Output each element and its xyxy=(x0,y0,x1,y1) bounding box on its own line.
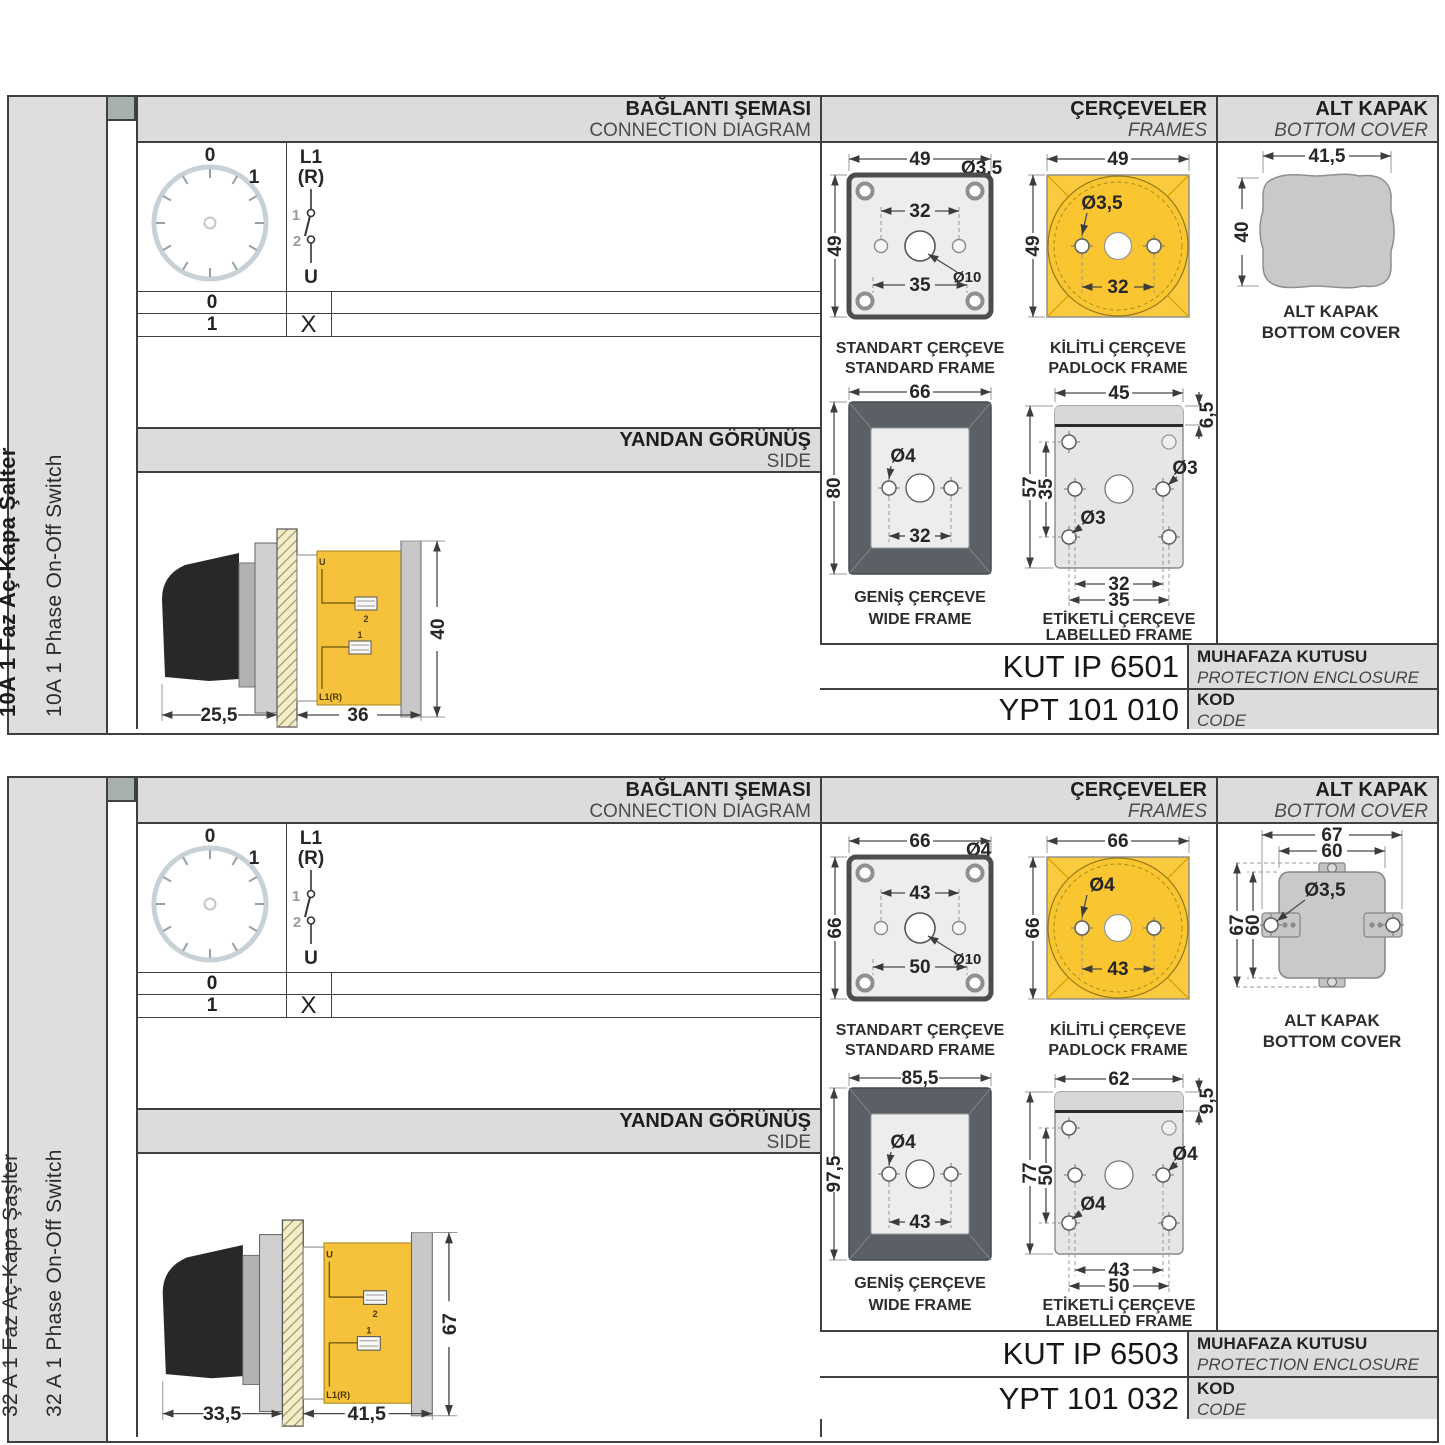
header-title-en: SIDE xyxy=(767,451,811,472)
frame-caption-en: LABELLED FRAME xyxy=(1046,627,1193,644)
terminal-l1r: L1(R) xyxy=(319,692,342,702)
labelled-frame-drawing: 45 6,5 57 35 Ø3 Ø3 32 35 ETİKETLİ ÇERÇEV… xyxy=(1019,384,1216,642)
bottom-cover-drawing: 41,5 40 ALT KAPAK BOTTOM COVER xyxy=(1217,145,1437,345)
order-code-label-tr: KOD xyxy=(1197,689,1437,710)
product-panel-32a: 32 A 1 Faz Aç-Kapa Şaşlter 32 A 1 Phase … xyxy=(7,776,1439,1443)
order-code-label-tr: KOD xyxy=(1197,1378,1437,1399)
dim-hole-centers: 43 xyxy=(909,1212,930,1233)
corner-block xyxy=(108,97,136,121)
order-code: YPT 101 010 xyxy=(820,688,1187,729)
standard-frame-drawing: 66 Ø4 43 Ø10 50 66 STANDART ÇERÇEVE STAN… xyxy=(821,826,1019,1066)
divider xyxy=(331,972,332,1017)
cover-caption-en: BOTTOM COVER xyxy=(1263,1032,1402,1051)
product-title-en: 10A 1 Phase On-Off Switch xyxy=(43,454,67,717)
dial-position-1: 1 xyxy=(249,848,260,869)
product-title-tr: 32 A 1 Faz Aç-Kapa Şaşlter xyxy=(0,1154,23,1417)
frames-header: ÇERÇEVELER FRAMES xyxy=(820,778,1216,824)
order-code-label-en: CODE xyxy=(1197,1399,1437,1420)
bottom-cover-header: ALT KAPAK BOTTOM COVER xyxy=(1216,97,1437,143)
standard-frame-drawing: 49 Ø3,5 32 Ø10 35 49 STANDART ÇERÇEVE ST… xyxy=(821,145,1019,383)
contact-1-label: 1 xyxy=(292,207,300,224)
header-title-en: FRAMES xyxy=(1128,801,1207,822)
terminal-u-label: U xyxy=(304,948,318,969)
dim-width: 49 xyxy=(909,149,930,170)
header-title-en: FRAMES xyxy=(1128,120,1207,141)
dim-lower-centers: 35 xyxy=(909,275,931,296)
enclosure-label-tr: MUHAFAZA KUTUSU xyxy=(1197,646,1437,667)
terminal-u: U xyxy=(319,557,326,567)
dim-height: 40 xyxy=(1232,221,1253,242)
dim-height: 67 xyxy=(439,1313,461,1335)
dim-height: 66 xyxy=(825,917,846,938)
dim-hole-mid: Ø4 xyxy=(1172,1144,1198,1165)
terminal-l1-label: L1 xyxy=(300,828,323,849)
terminal-u: U xyxy=(326,1250,333,1260)
header-title-tr: BAĞLANTI ŞEMASI xyxy=(625,779,811,801)
product-panel-10a: 10A 1 Faz Aç-Kapa Şalter 10A 1 Phase On-… xyxy=(7,95,1439,735)
side-title-strip: 32 A 1 Faz Aç-Kapa Şaşlter 32 A 1 Phase … xyxy=(9,778,108,1441)
dim-hole-mid: Ø3 xyxy=(1172,458,1197,479)
terminal-u-label: U xyxy=(304,267,318,288)
bottom-cover-drawing: 67 60 67 60 Ø3,5 ALT KAPAK BOTTOM COVER xyxy=(1217,826,1437,1061)
dim-lower-centers: 35 xyxy=(1108,590,1130,611)
frame-caption-tr: ETİKETLİ ÇERÇEVE xyxy=(1043,1296,1196,1314)
side-view-drawing: U 2 1 L1(R) 40 25,5 36 xyxy=(149,479,629,724)
dim-strip: 9,5 xyxy=(1197,1087,1218,1114)
dim-width: 49 xyxy=(1107,149,1128,170)
terminal-l1r: L1(R) xyxy=(326,1390,350,1400)
padlock-frame-drawing: 49 Ø3,5 32 49 KİLİTLİ ÇERÇEVE PADLOCK FR… xyxy=(1019,145,1216,383)
dim-strip: 6,5 xyxy=(1197,401,1218,428)
enclosure-label-en: PROTECTION ENCLOSURE xyxy=(1197,667,1437,688)
header-title-tr: ALT KAPAK xyxy=(1315,98,1428,120)
dim-handle-depth: 25,5 xyxy=(201,705,238,726)
frame-caption-tr: STANDART ÇERÇEVE xyxy=(836,340,1005,357)
dim-handle-depth: 33,5 xyxy=(203,1403,241,1425)
switch-symbol: L1 (R) 1 2 U xyxy=(287,143,407,291)
frame-caption-en: LABELLED FRAME xyxy=(1046,1313,1193,1330)
dim-hole: Ø4 xyxy=(1089,875,1115,896)
dim-height: 97,5 xyxy=(824,1155,845,1192)
frame-caption-en: WIDE FRAME xyxy=(868,1297,971,1314)
dim-hole-low: Ø3 xyxy=(1080,508,1105,529)
header-title-en: SIDE xyxy=(767,1132,811,1153)
connection-diagram-header: BAĞLANTI ŞEMASI CONNECTION DIAGRAM xyxy=(138,97,820,143)
enclosure-label: MUHAFAZA KUTUSU PROTECTION ENCLOSURE xyxy=(1187,1330,1437,1376)
dim-width: 66 xyxy=(909,382,930,403)
dim-body-depth: 36 xyxy=(347,705,368,726)
side-title-strip: 10A 1 Faz Aç-Kapa Şalter 10A 1 Phase On-… xyxy=(9,97,108,733)
table-line xyxy=(138,1017,820,1018)
dim-hole: Ø4 xyxy=(890,446,916,467)
order-code-label-en: CODE xyxy=(1197,710,1437,731)
connection-diagram-header: BAĞLANTI ŞEMASI CONNECTION DIAGRAM xyxy=(138,778,820,824)
dim-height: 49 xyxy=(1023,235,1044,256)
order-code-label: KOD CODE xyxy=(1187,688,1437,729)
dim-width: 41,5 xyxy=(1309,146,1346,167)
wide-frame-drawing: 66 Ø4 32 80 GENİŞ ÇERÇEVE WIDE FRAME xyxy=(821,384,1019,642)
dim-width: 62 xyxy=(1108,1069,1129,1090)
product-title-en: 32 A 1 Phase On-Off Switch xyxy=(43,1149,67,1417)
header-title-tr: BAĞLANTI ŞEMASI xyxy=(625,98,811,120)
dim-width: 45 xyxy=(1108,383,1130,404)
cover-caption-tr: ALT KAPAK xyxy=(1284,1011,1380,1030)
dim-height: 80 xyxy=(824,477,845,498)
wide-frame-drawing: 85,5 Ø4 43 97,5 GENİŞ ÇERÇEVE WIDE FRAME xyxy=(821,1070,1019,1328)
frame-caption-tr: ETİKETLİ ÇERÇEVE xyxy=(1043,610,1196,628)
rotary-dial-diagram: 0 1 xyxy=(138,143,286,291)
product-title-tr: 10A 1 Faz Aç-Kapa Şalter xyxy=(0,447,21,717)
dim-height: 66 xyxy=(1023,917,1044,938)
terminal-1: 1 xyxy=(366,1325,371,1335)
header-title-en: CONNECTION DIAGRAM xyxy=(589,120,811,141)
dim-inner-height: 35 xyxy=(1036,478,1057,500)
dim-hole-centers: 43 xyxy=(1107,959,1128,980)
dim-height: 40 xyxy=(428,618,449,639)
dim-hole: Ø3,5 xyxy=(1081,193,1123,214)
contact-2-label: 2 xyxy=(293,233,301,250)
dim-width: 66 xyxy=(1107,831,1128,852)
table-row-position: 1 xyxy=(138,314,286,336)
divider xyxy=(331,291,332,336)
enclosure-label-en: PROTECTION ENCLOSURE xyxy=(1197,1354,1437,1375)
labelled-frame-drawing: 62 9,5 77 50 Ø4 Ø4 43 50 ETİKETLİ ÇERÇEV… xyxy=(1019,1070,1216,1328)
table-line xyxy=(138,336,820,337)
side-view-header: YANDAN GÖRÜNÜŞ SIDE xyxy=(138,427,820,473)
dim-width: 85,5 xyxy=(902,1068,939,1089)
order-code-label: KOD CODE xyxy=(1187,1376,1437,1419)
contact-closed-mark: X xyxy=(286,314,331,336)
bottom-cover-header: ALT KAPAK BOTTOM COVER xyxy=(1216,778,1437,824)
contact-1-label: 1 xyxy=(292,888,300,905)
terminal-2: 2 xyxy=(372,1309,377,1319)
dim-hole: Ø3,5 xyxy=(1304,880,1346,901)
frame-caption-tr: GENİŞ ÇERÇEVE xyxy=(854,588,986,606)
dim-lower-centers: 50 xyxy=(909,957,930,978)
dim-hole: Ø4 xyxy=(890,1132,916,1153)
dim-hole-centers: 32 xyxy=(909,201,930,222)
dim-width: 66 xyxy=(909,831,930,852)
dim-lower-centers: 50 xyxy=(1108,1276,1129,1297)
frame-caption-tr: KİLİTLİ ÇERÇEVE xyxy=(1050,339,1186,357)
contact-closed-mark: X xyxy=(286,995,331,1017)
frame-caption-en: STANDARD FRAME xyxy=(845,360,995,377)
dial-position-1: 1 xyxy=(249,167,260,188)
enclosure-label: MUHAFAZA KUTUSU PROTECTION ENCLOSURE xyxy=(1187,643,1437,688)
enclosure-code: KUT IP 6503 xyxy=(820,1330,1187,1376)
table-row-position: 0 xyxy=(138,292,286,313)
corner-block xyxy=(108,778,136,802)
header-title-tr: YANDAN GÖRÜNÜŞ xyxy=(619,1110,811,1132)
cover-caption-tr: ALT KAPAK xyxy=(1283,302,1379,321)
rotary-dial-diagram: 0 1 xyxy=(138,824,286,972)
header-title-en: BOTTOM COVER xyxy=(1274,801,1428,822)
terminal-r-label: (R) xyxy=(298,167,324,188)
dim-hole-centers: 32 xyxy=(909,526,930,547)
frame-caption-en: WIDE FRAME xyxy=(868,611,971,628)
header-title-en: CONNECTION DIAGRAM xyxy=(589,801,811,822)
enclosure-label-tr: MUHAFAZA KUTUSU xyxy=(1197,1333,1437,1354)
header-title-tr: YANDAN GÖRÜNÜŞ xyxy=(619,429,811,451)
cover-caption-en: BOTTOM COVER xyxy=(1262,323,1401,342)
dim-hole-low: Ø4 xyxy=(1080,1194,1106,1215)
terminal-2: 2 xyxy=(363,614,368,624)
terminal-l1-label: L1 xyxy=(300,147,323,168)
side-view-drawing: U 2 1 L1(R) 67 33,5 41,5 xyxy=(149,1168,649,1423)
dim-height-inner: 60 xyxy=(1243,914,1264,935)
header-title-tr: ÇERÇEVELER xyxy=(1070,779,1207,801)
header-title-en: BOTTOM COVER xyxy=(1274,120,1428,141)
frame-caption-en: PADLOCK FRAME xyxy=(1048,1042,1188,1059)
header-title-tr: ALT KAPAK xyxy=(1315,779,1428,801)
header-title-tr: ÇERÇEVELER xyxy=(1070,98,1207,120)
dim-hole-centers: 43 xyxy=(909,883,930,904)
frame-caption-tr: GENİŞ ÇERÇEVE xyxy=(854,1274,986,1292)
frame-caption-tr: KİLİTLİ ÇERÇEVE xyxy=(1050,1021,1186,1039)
frame-caption-en: PADLOCK FRAME xyxy=(1048,360,1188,377)
switch-symbol: L1 (R) 1 2 U xyxy=(287,824,407,972)
terminal-1: 1 xyxy=(357,630,362,640)
dial-position-0: 0 xyxy=(205,145,216,166)
dim-width-inner: 60 xyxy=(1321,841,1342,862)
frame-caption-en: STANDARD FRAME xyxy=(845,1042,995,1059)
frames-header: ÇERÇEVELER FRAMES xyxy=(820,97,1216,143)
dim-hole-centers: 32 xyxy=(1107,277,1128,298)
contact-2-label: 2 xyxy=(293,914,301,931)
dim-body-depth: 41,5 xyxy=(347,1403,385,1425)
dial-position-0: 0 xyxy=(205,826,216,847)
padlock-frame-drawing: 66 Ø4 43 66 KİLİTLİ ÇERÇEVE PADLOCK FRAM… xyxy=(1019,826,1216,1066)
table-row-position: 1 xyxy=(138,995,286,1017)
dim-height: 49 xyxy=(825,235,846,256)
frame-caption-tr: STANDART ÇERÇEVE xyxy=(836,1022,1005,1039)
order-code: YPT 101 032 xyxy=(820,1376,1187,1419)
terminal-r-label: (R) xyxy=(298,848,324,869)
side-view-header: YANDAN GÖRÜNÜŞ SIDE xyxy=(138,1108,820,1154)
enclosure-code: KUT IP 6501 xyxy=(820,643,1187,688)
dim-inner-height: 50 xyxy=(1036,1164,1057,1185)
table-row-position: 0 xyxy=(138,973,286,994)
